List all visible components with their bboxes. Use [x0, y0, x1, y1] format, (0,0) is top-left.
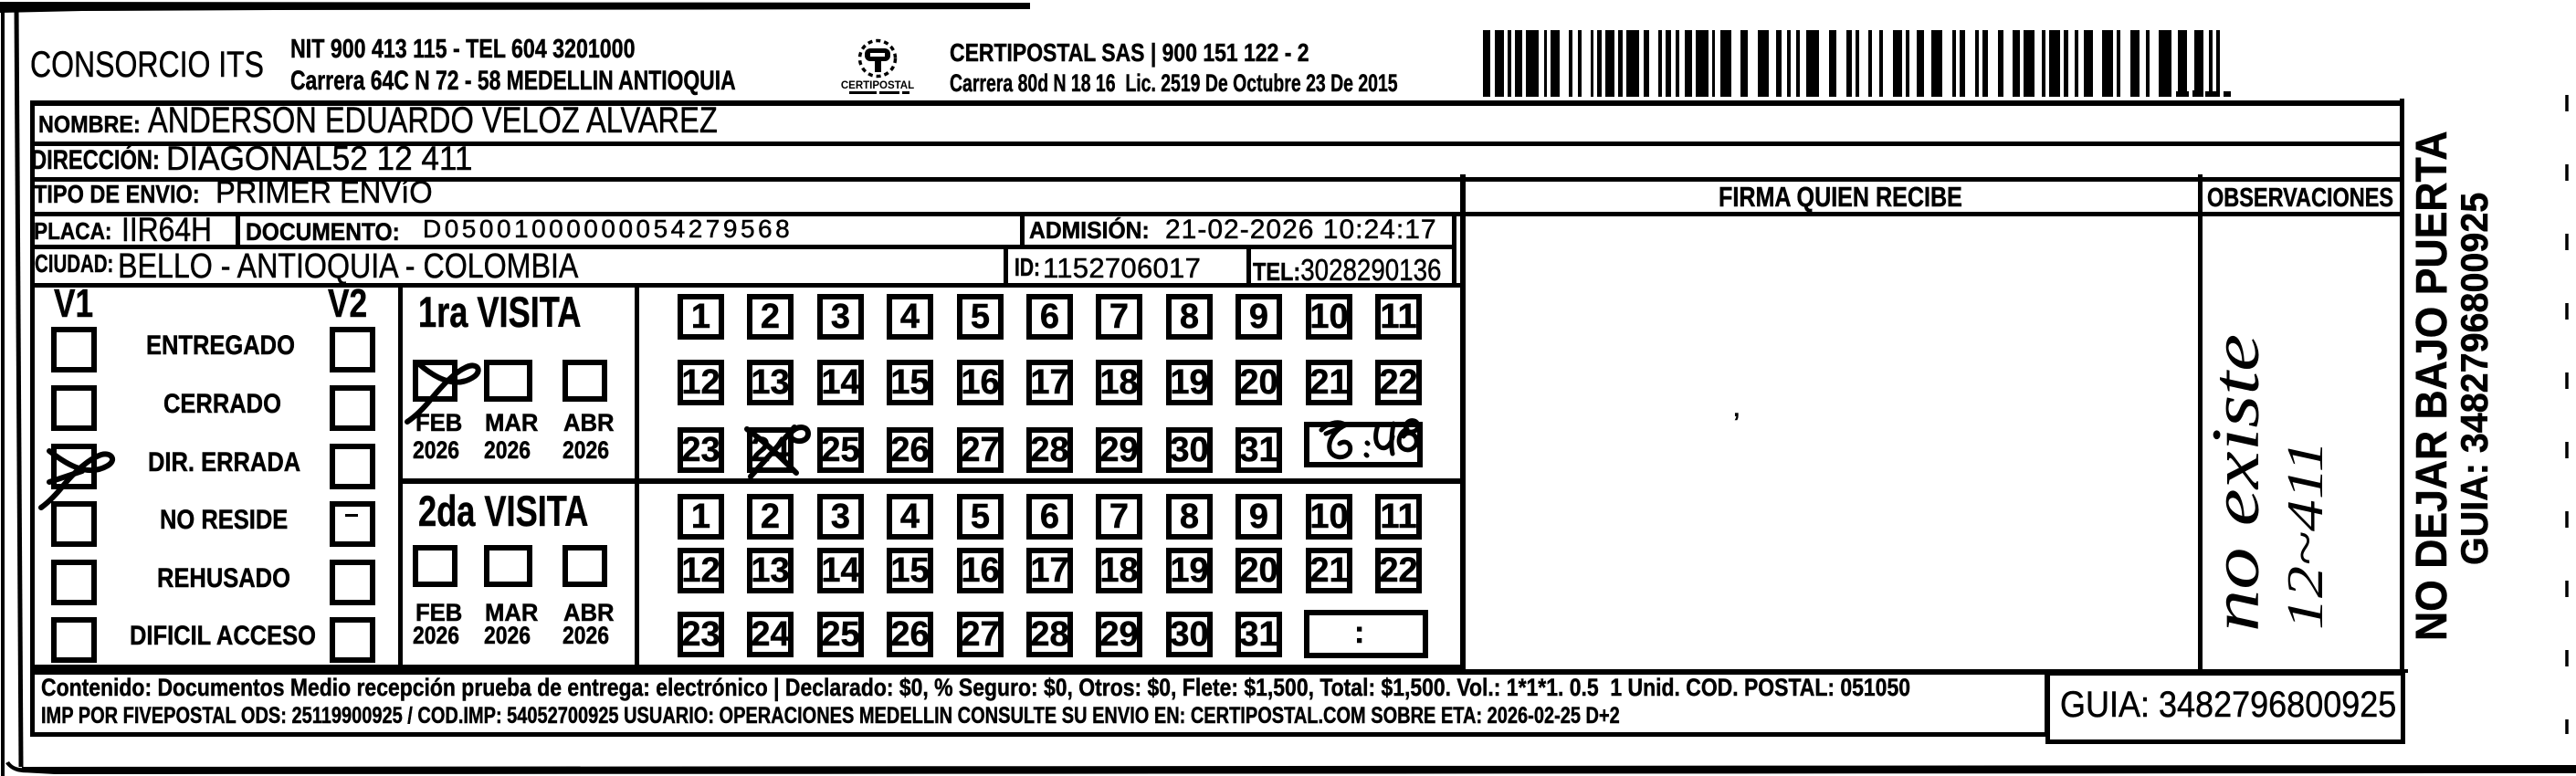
svg-text:CERTIPOSTAL: CERTIPOSTAL — [841, 80, 914, 91]
